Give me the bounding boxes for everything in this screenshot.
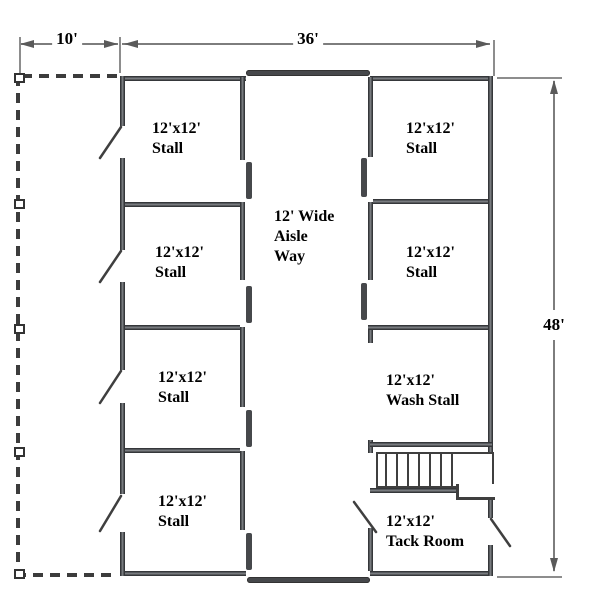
stall-divider-wall bbox=[125, 448, 240, 453]
door-swing-line bbox=[491, 519, 510, 546]
stair-tread bbox=[407, 454, 409, 486]
aisle-wall-right bbox=[368, 77, 373, 157]
wash-stall-bottom-wall bbox=[370, 442, 492, 447]
room-name: Stall bbox=[158, 388, 207, 408]
room-name: Stall bbox=[152, 139, 201, 159]
post-marker bbox=[14, 73, 25, 83]
room-size: 12'x12' bbox=[406, 243, 455, 263]
plan-overlay bbox=[0, 0, 600, 603]
room-size: 12'x12' bbox=[158, 368, 207, 388]
room-size: 12'x12' bbox=[152, 119, 201, 139]
room-name: Stall bbox=[158, 512, 207, 532]
stall-door-panel bbox=[246, 410, 252, 447]
stall-divider-wall bbox=[368, 325, 488, 330]
stall-divider-wall bbox=[125, 325, 240, 330]
door-swing-line bbox=[100, 496, 121, 531]
stall-door-panel bbox=[246, 162, 252, 199]
room-size: 12'x12' bbox=[158, 492, 207, 512]
stall-door-panel bbox=[246, 533, 252, 570]
room-name: Stall bbox=[406, 139, 455, 159]
aisle-wall-left bbox=[240, 451, 245, 530]
post-marker bbox=[14, 199, 25, 209]
stair-tread bbox=[429, 454, 431, 486]
extension-line bbox=[119, 37, 121, 73]
extension-line bbox=[19, 37, 21, 73]
stair-tread bbox=[418, 454, 420, 486]
room-label-stall-left-2: 12'x12' Stall bbox=[155, 243, 204, 283]
room-label-stall-left-4: 12'x12' Stall bbox=[158, 492, 207, 532]
aisle-wall-left bbox=[240, 202, 245, 280]
room-size: 12'x12' bbox=[386, 512, 464, 532]
aisle-door-top bbox=[246, 70, 370, 76]
stall-door-panel bbox=[246, 286, 252, 323]
extension-line bbox=[493, 40, 495, 76]
room-name: Stall bbox=[155, 263, 204, 283]
extension-line bbox=[497, 77, 562, 79]
tack-room-top-wall bbox=[370, 488, 458, 493]
aisle-label: 12' Wide Aisle Way bbox=[274, 207, 334, 267]
room-name: Wash Stall bbox=[386, 391, 459, 411]
exterior-wall-top bbox=[120, 76, 246, 81]
room-size: 12'x12' bbox=[406, 119, 455, 139]
stair-landing bbox=[456, 484, 495, 500]
aisle-door-bottom bbox=[247, 577, 370, 583]
overhang-dashed-bottom bbox=[16, 573, 116, 577]
room-name: Tack Room bbox=[386, 532, 464, 552]
post-marker bbox=[14, 569, 25, 579]
stair-tread bbox=[451, 454, 453, 486]
exterior-wall-top bbox=[370, 76, 493, 81]
stall-divider-wall bbox=[125, 202, 240, 207]
overhang-width-label: 10' bbox=[52, 29, 82, 49]
aisle-line-1: 12' Wide bbox=[274, 207, 334, 227]
stair-tread bbox=[396, 454, 398, 486]
overhang-dashed-top bbox=[22, 74, 120, 78]
post-marker bbox=[14, 447, 25, 457]
aisle-wall-right bbox=[368, 202, 373, 280]
room-label-wash-stall: 12'x12' Wash Stall bbox=[386, 371, 459, 411]
stall-divider-wall bbox=[373, 199, 488, 204]
aisle-wall-left bbox=[240, 77, 245, 160]
aisle-line-2: Aisle bbox=[274, 227, 334, 247]
room-label-tack-room: 12'x12' Tack Room bbox=[386, 512, 464, 552]
barn-floor-plan: 10' 36' 48' bbox=[0, 0, 600, 603]
barn-length-label: 48' bbox=[540, 310, 568, 340]
door-swing-line bbox=[100, 127, 121, 158]
room-label-stall-right-2: 12'x12' Stall bbox=[406, 243, 455, 283]
exterior-wall-left bbox=[120, 76, 125, 126]
stairs-symbol bbox=[376, 452, 494, 488]
aisle-wall-right bbox=[368, 528, 373, 571]
extension-line bbox=[497, 576, 562, 578]
aisle-line-3: Way bbox=[274, 247, 334, 267]
stall-door-panel bbox=[361, 158, 367, 197]
room-label-stall-left-1: 12'x12' Stall bbox=[152, 119, 201, 159]
stair-tread bbox=[440, 454, 442, 486]
room-size: 12'x12' bbox=[386, 371, 459, 391]
room-label-stall-left-3: 12'x12' Stall bbox=[158, 368, 207, 408]
exterior-wall-bottom bbox=[120, 571, 246, 576]
aisle-wall-left bbox=[240, 327, 245, 407]
room-label-stall-right-1: 12'x12' Stall bbox=[406, 119, 455, 159]
exterior-wall-right bbox=[488, 545, 493, 576]
exterior-wall-left bbox=[120, 532, 125, 576]
room-size: 12'x12' bbox=[155, 243, 204, 263]
door-swing-line bbox=[100, 371, 121, 403]
exterior-wall-bottom bbox=[370, 571, 493, 576]
barn-width-label: 36' bbox=[293, 29, 323, 49]
room-name: Stall bbox=[406, 263, 455, 283]
door-swing-line bbox=[100, 251, 121, 282]
stair-tread bbox=[385, 454, 387, 486]
stall-door-panel bbox=[361, 283, 367, 320]
post-marker bbox=[14, 324, 25, 334]
